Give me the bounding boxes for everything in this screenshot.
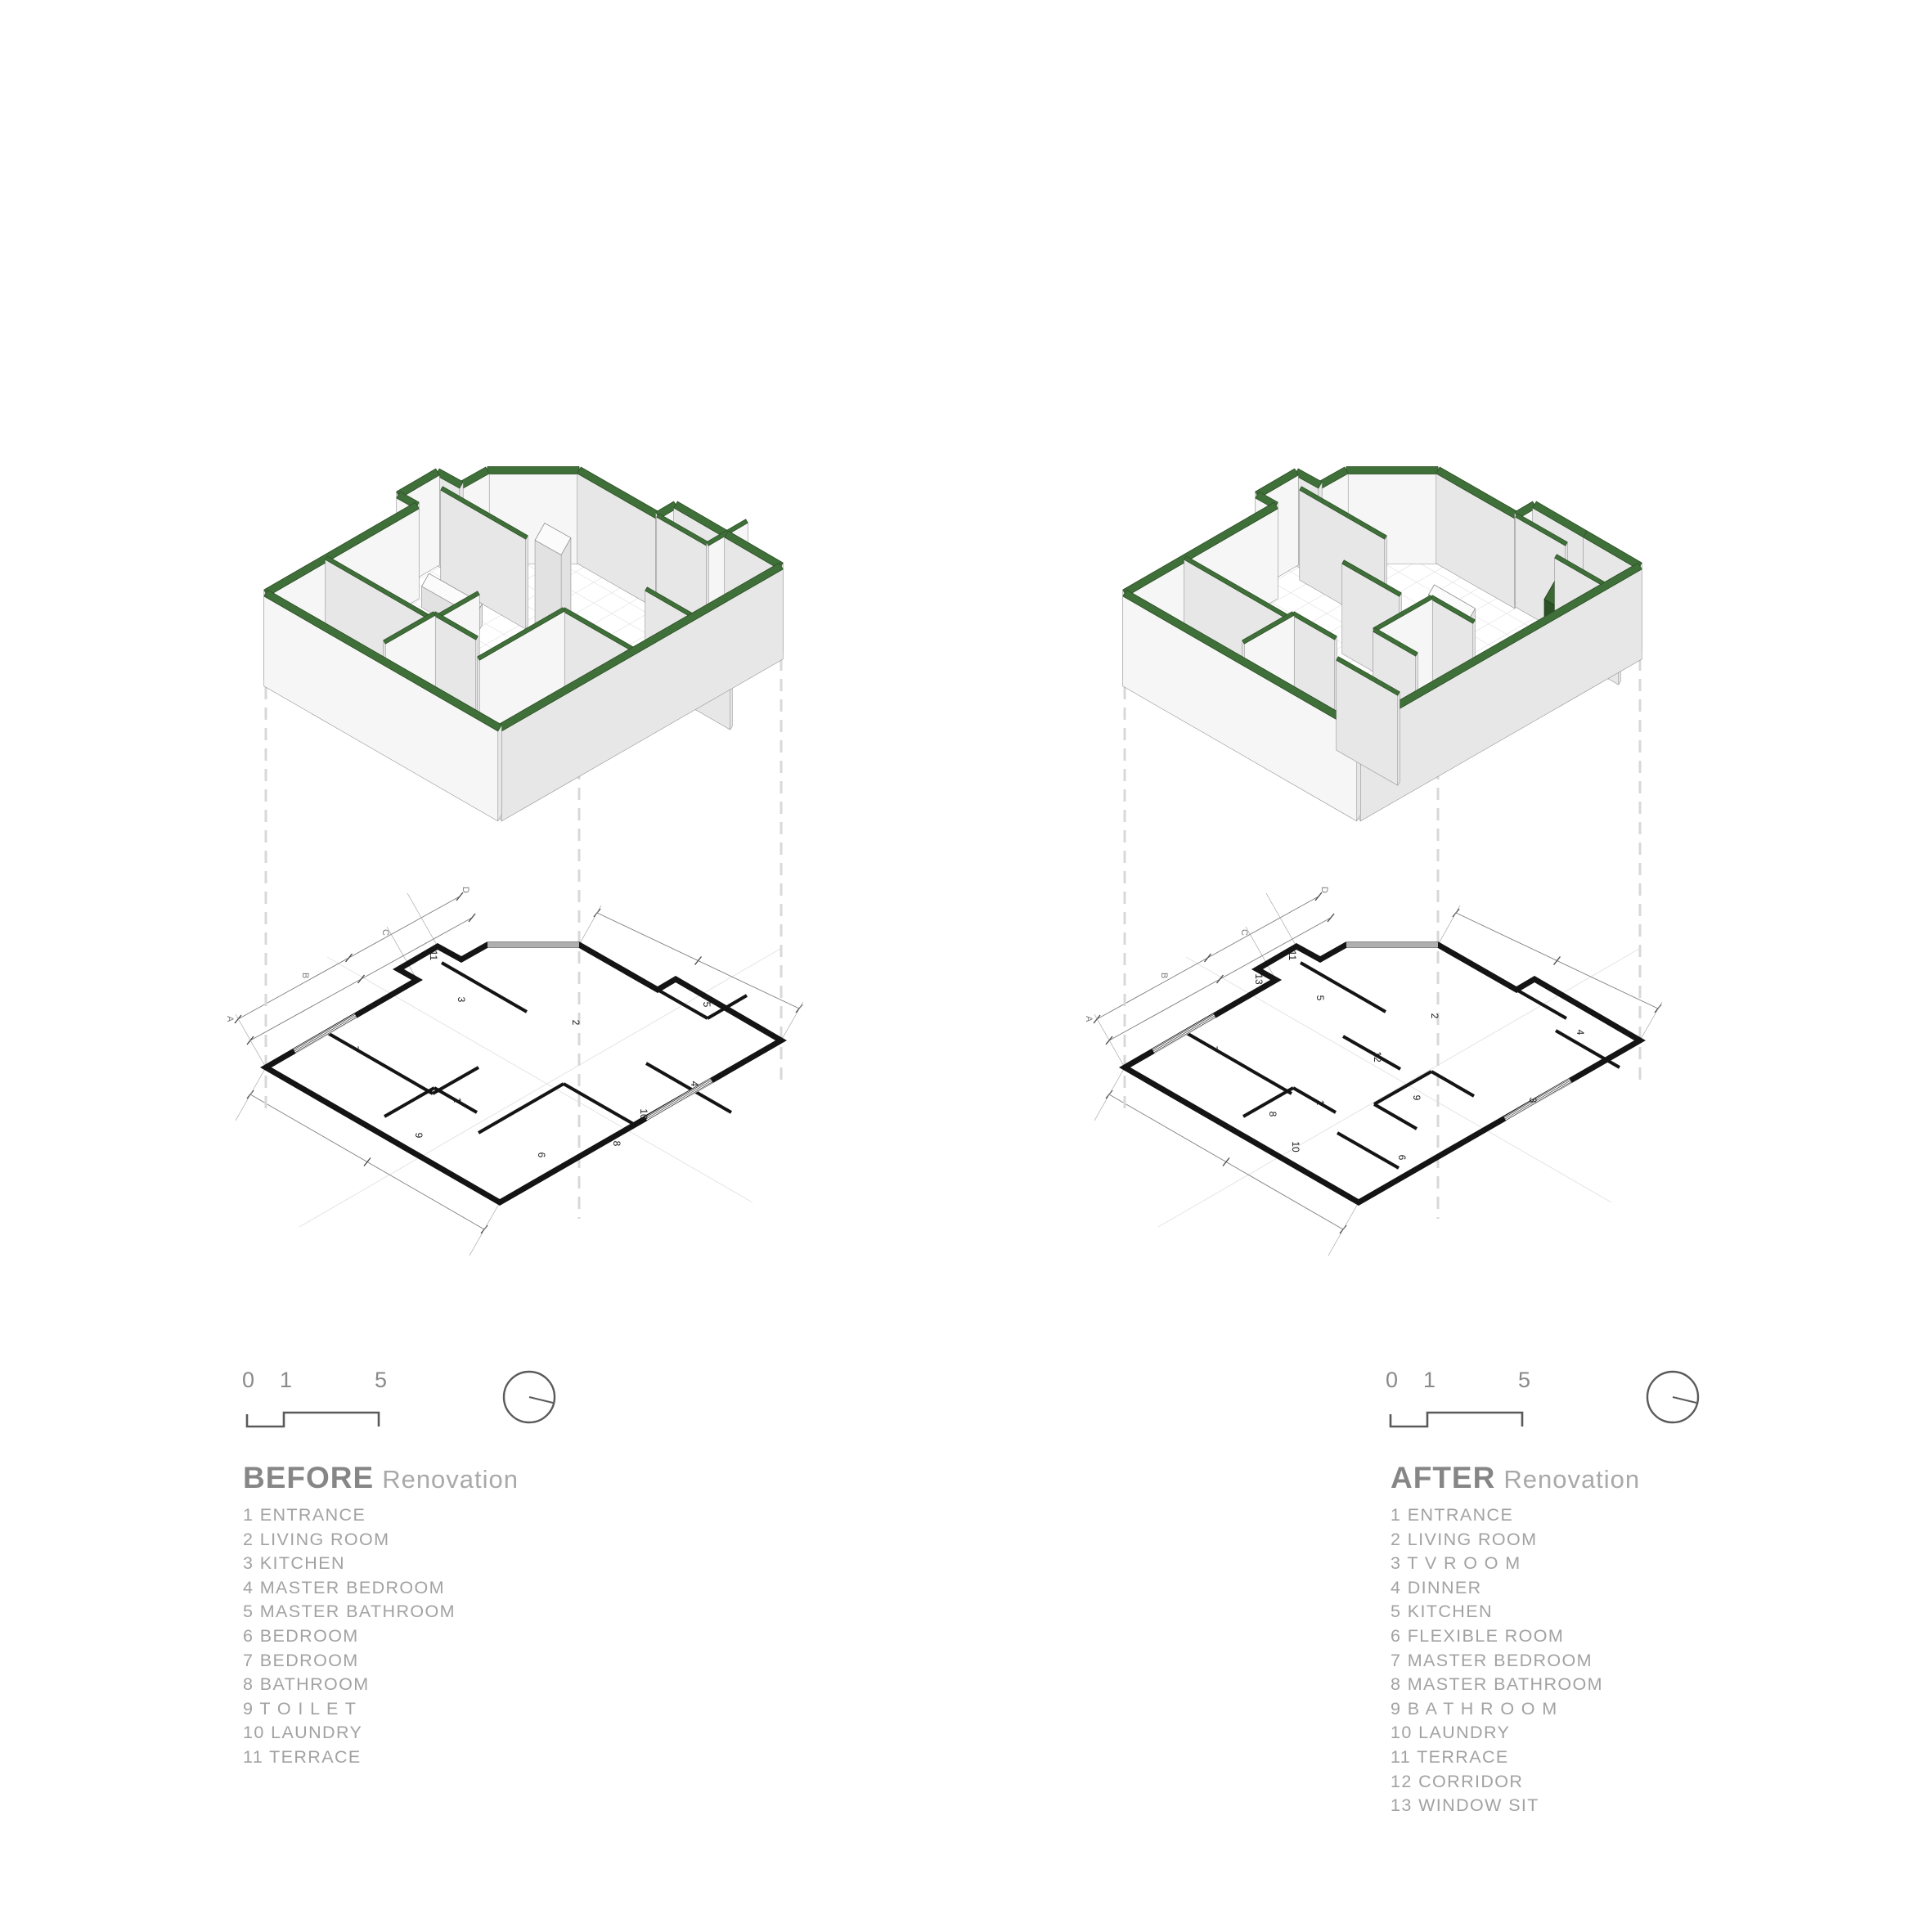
scale-tick-1: 1 [280, 1368, 292, 1392]
legend-item: 13 WINDOW SIT [1391, 1794, 1849, 1818]
legend-item: 8 MASTER BATHROOM [1391, 1673, 1849, 1697]
dimension-tick [796, 1004, 802, 1013]
plan-interior-wall [646, 1063, 731, 1112]
plan-interior-wall [1556, 1031, 1620, 1067]
legend-item: 4 MASTER BEDROOM [243, 1576, 701, 1601]
plan-room-number: 8 [611, 1141, 622, 1147]
dimension-tick [1554, 957, 1561, 965]
before-axonometric-and-plan-figure: ABCD1234567891011 [188, 376, 892, 1301]
extension-line [1266, 893, 1296, 946]
plan-interior-wall [1293, 1088, 1336, 1112]
plan-room-number: 10 [638, 1108, 649, 1120]
legend-item: 7 BEDROOM [243, 1649, 701, 1674]
plan-interior-wall [442, 963, 527, 1012]
extension-line [1640, 1002, 1662, 1040]
before-title: BEFORERenovation [243, 1461, 701, 1495]
after-room-legend: 1 ENTRANCE2 LIVING ROOM3 T V R O O M4 DI… [1391, 1503, 1849, 1818]
scale-tick-0: 0 [1386, 1368, 1398, 1392]
dimension-tick [456, 892, 463, 901]
plan-room-number: 4 [689, 1081, 700, 1087]
legend-item: 3 T V R O O M [1391, 1552, 1849, 1576]
plan-exterior-walls [266, 945, 781, 1202]
plan-room-number: 3 [1527, 1098, 1539, 1103]
plan-interior-wall [1185, 1032, 1292, 1094]
grid-axis-letter: D [461, 887, 470, 893]
dimension-tick [1094, 1015, 1100, 1023]
plan-exterior-walls [1125, 945, 1640, 1202]
dimension-tick [469, 914, 475, 922]
dimension-tick [1328, 914, 1334, 922]
plan-room-number: 1 [1314, 1100, 1326, 1106]
plan-window-glass-line [647, 1082, 712, 1121]
extension-line [1094, 1067, 1125, 1121]
extension-line [236, 1014, 266, 1067]
plan-window-glass-line [1154, 1018, 1215, 1053]
extension-line [407, 893, 438, 946]
after-scalebar-group: 0 1 5 [1373, 1341, 1765, 1448]
scale-bar [247, 1413, 379, 1427]
dimension-tick [1223, 1158, 1229, 1166]
plan-room-number: 5 [701, 1002, 712, 1008]
compass-needle-icon [529, 1397, 553, 1403]
grid-axis-letter: A [1084, 1016, 1094, 1022]
dimension-tick [1205, 954, 1211, 962]
plan-room-number: 13 [1253, 973, 1265, 985]
plan-room-number: 11 [428, 950, 439, 961]
plan-room-number: 9 [413, 1133, 425, 1139]
after-caption-block: AFTERRenovation 1 ENTRANCE2 LIVING ROOM3… [1391, 1461, 1849, 1818]
after-title-light: Renovation [1503, 1465, 1640, 1494]
dimension-tick [346, 954, 353, 962]
legend-item: 4 DINNER [1391, 1576, 1849, 1601]
grid-axis-letter: C [380, 929, 390, 936]
grid-axis-letter: C [1239, 929, 1249, 936]
plan-room-number: 6 [1396, 1155, 1408, 1161]
plan-room-number: 7 [349, 1046, 361, 1052]
legend-item: 8 BATHROOM [243, 1673, 701, 1697]
legend-item: 12 CORRIDOR [1391, 1770, 1849, 1795]
plan-interior-wall [326, 1032, 433, 1094]
before-scalebar-group: 0 1 5 [229, 1341, 622, 1448]
grid-axis-letter: B [1159, 973, 1169, 978]
plan-interior-wall [1337, 1133, 1399, 1168]
grid-axis-letter: B [300, 973, 310, 978]
plan-room-number: 6 [536, 1152, 547, 1158]
legend-item: 2 LIVING ROOM [1391, 1528, 1849, 1552]
structural-grid-line [299, 949, 780, 1227]
plan-room-number: 2 [1429, 1013, 1440, 1019]
scale-tick-5: 5 [375, 1368, 387, 1392]
legend-item: 5 KITCHEN [1391, 1600, 1849, 1624]
before-title-light: Renovation [382, 1465, 519, 1494]
extension-line [1438, 905, 1460, 945]
extension-line [1094, 1014, 1125, 1067]
plan-room-number: 8 [1267, 1112, 1278, 1117]
extension-line [236, 1067, 266, 1121]
legend-item: 6 FLEXIBLE ROOM [1391, 1624, 1849, 1649]
plan-room-number: 5 [1314, 995, 1326, 1001]
legend-item: 2 LIVING ROOM [243, 1528, 701, 1552]
legend-item: 3 KITCHEN [243, 1552, 701, 1576]
plan-room-number: 10 [1290, 1141, 1301, 1152]
before-title-strong: BEFORE [243, 1461, 374, 1494]
plan-room-number: 1 [452, 1098, 463, 1103]
compass-needle-icon [1673, 1397, 1696, 1403]
extension-line [781, 1002, 803, 1040]
renovation-diagram-sheet: { "sheet": {"background": "#ffffff"}, "c… [0, 0, 1932, 1932]
structural-grid-line [1158, 949, 1639, 1227]
plan-room-number: 2 [570, 1020, 582, 1026]
plan-window-glass-line [646, 1081, 712, 1119]
before-room-legend: 1 ENTRANCE2 LIVING ROOM3 KITCHEN4 MASTER… [243, 1503, 701, 1770]
plan-interior-wall [479, 1084, 564, 1133]
legend-item: 6 BEDROOM [243, 1624, 701, 1649]
extension-line [470, 1202, 500, 1256]
dimension-tick [1315, 892, 1322, 901]
after-title: AFTERRenovation [1391, 1461, 1849, 1495]
plan-room-number: 3 [456, 997, 467, 1003]
legend-item: 11 TERRACE [243, 1746, 701, 1770]
dimension-tick [235, 1015, 241, 1023]
legend-item: 10 LAUNDRY [243, 1721, 701, 1746]
legend-item: 11 TERRACE [1391, 1746, 1849, 1770]
legend-item: 9 T O I L E T [243, 1697, 701, 1722]
scale-tick-0: 0 [242, 1368, 254, 1392]
dimension-tick [364, 1158, 371, 1166]
plan-room-number: 9 [1411, 1095, 1422, 1101]
plan-room-number: 7 [1208, 1046, 1220, 1052]
grid-axis-letter: A [225, 1016, 235, 1022]
plan-room-number: 12 [1372, 1051, 1383, 1063]
grid-axis-letter: D [1319, 887, 1329, 893]
extension-line [579, 905, 601, 945]
extension-line [1328, 1202, 1359, 1256]
plan-room-number: 4 [1575, 1030, 1586, 1036]
legend-item: 1 ENTRANCE [1391, 1503, 1849, 1528]
legend-item: 10 LAUNDRY [1391, 1721, 1849, 1746]
plan-room-number: 11 [1287, 950, 1298, 961]
before-caption-block: BEFORERenovation 1 ENTRANCE2 LIVING ROOM… [243, 1461, 701, 1770]
scale-tick-1: 1 [1423, 1368, 1436, 1392]
dimension-tick [1655, 1004, 1661, 1013]
plan-interior-wall [564, 1084, 635, 1125]
legend-item: 7 MASTER BEDROOM [1391, 1649, 1849, 1674]
plan-window-glass-line [645, 1079, 711, 1117]
plan-interior-wall [1301, 963, 1386, 1012]
legend-item: 1 ENTRANCE [243, 1503, 701, 1528]
plan-window-glass-line [295, 1018, 357, 1053]
scale-tick-5: 5 [1518, 1368, 1530, 1392]
legend-item: 9 B A T H R O O M [1391, 1697, 1849, 1722]
dimension-tick [695, 957, 702, 965]
scale-bar [1391, 1413, 1522, 1427]
plan-interior-wall [384, 1088, 434, 1117]
legend-item: 5 MASTER BATHROOM [243, 1600, 701, 1624]
after-axonometric-and-plan-figure: ABCD12345678910111213 [1047, 376, 1750, 1301]
plan-interior-wall [1374, 1104, 1417, 1129]
after-title-strong: AFTER [1391, 1461, 1495, 1494]
